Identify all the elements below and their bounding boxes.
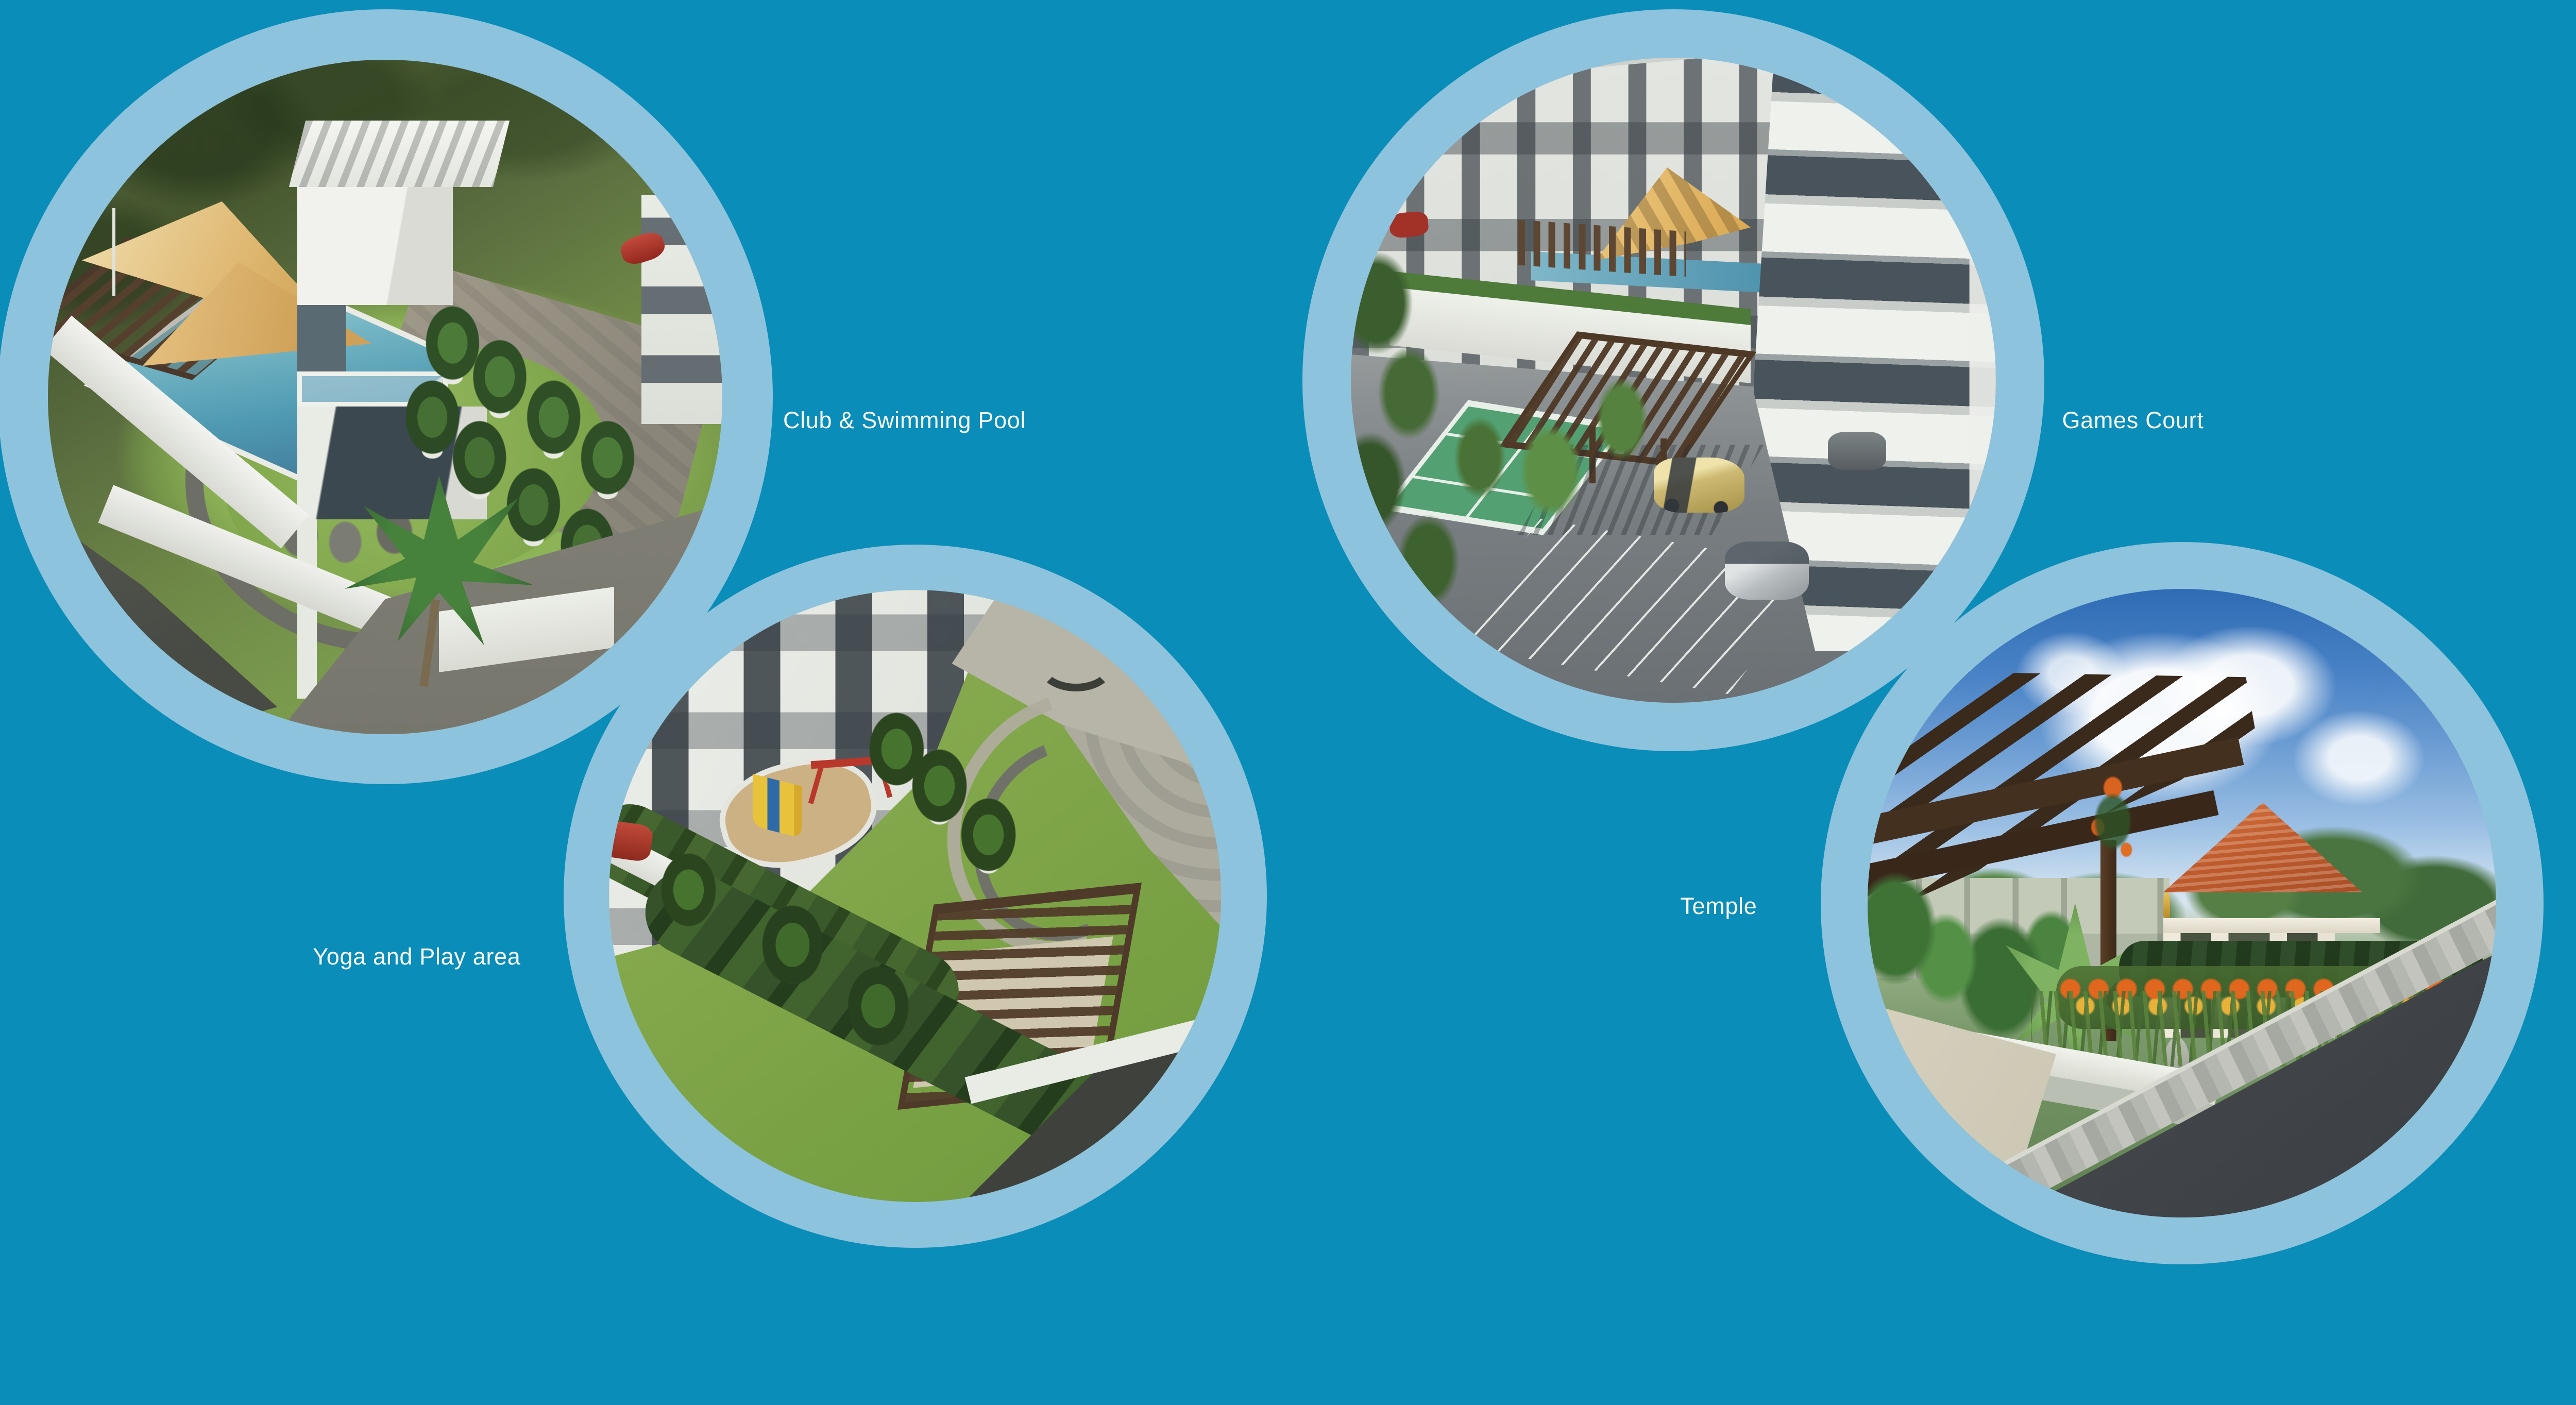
label-games-court: Games Court	[2062, 407, 2204, 434]
silver-hatchback-car	[1725, 541, 1809, 600]
games-court-photo	[1351, 58, 1996, 703]
label-temple: Temple	[1680, 893, 1757, 920]
potted-trees	[609, 590, 1221, 1202]
temple-gold-finial	[2163, 892, 2170, 918]
bubble-yoga-play-area	[564, 545, 1267, 1248]
label-club-swimming-pool: Club & Swimming Pool	[783, 407, 1026, 434]
label-yoga-play-area: Yoga and Play area	[313, 943, 520, 970]
yoga-play-area-photo	[609, 590, 1221, 1202]
temple-photo	[1868, 589, 2496, 1217]
parked-car	[1828, 432, 1886, 470]
curved-bench	[1038, 639, 1114, 691]
brochure-page: Club & Swimming Pool Yoga and Play area …	[0, 0, 2576, 1296]
apartment-building-edge	[641, 195, 722, 424]
temple-eave	[2163, 918, 2381, 933]
bubble-temple	[1821, 542, 2544, 1264]
beige-sedan-car	[1654, 458, 1744, 512]
